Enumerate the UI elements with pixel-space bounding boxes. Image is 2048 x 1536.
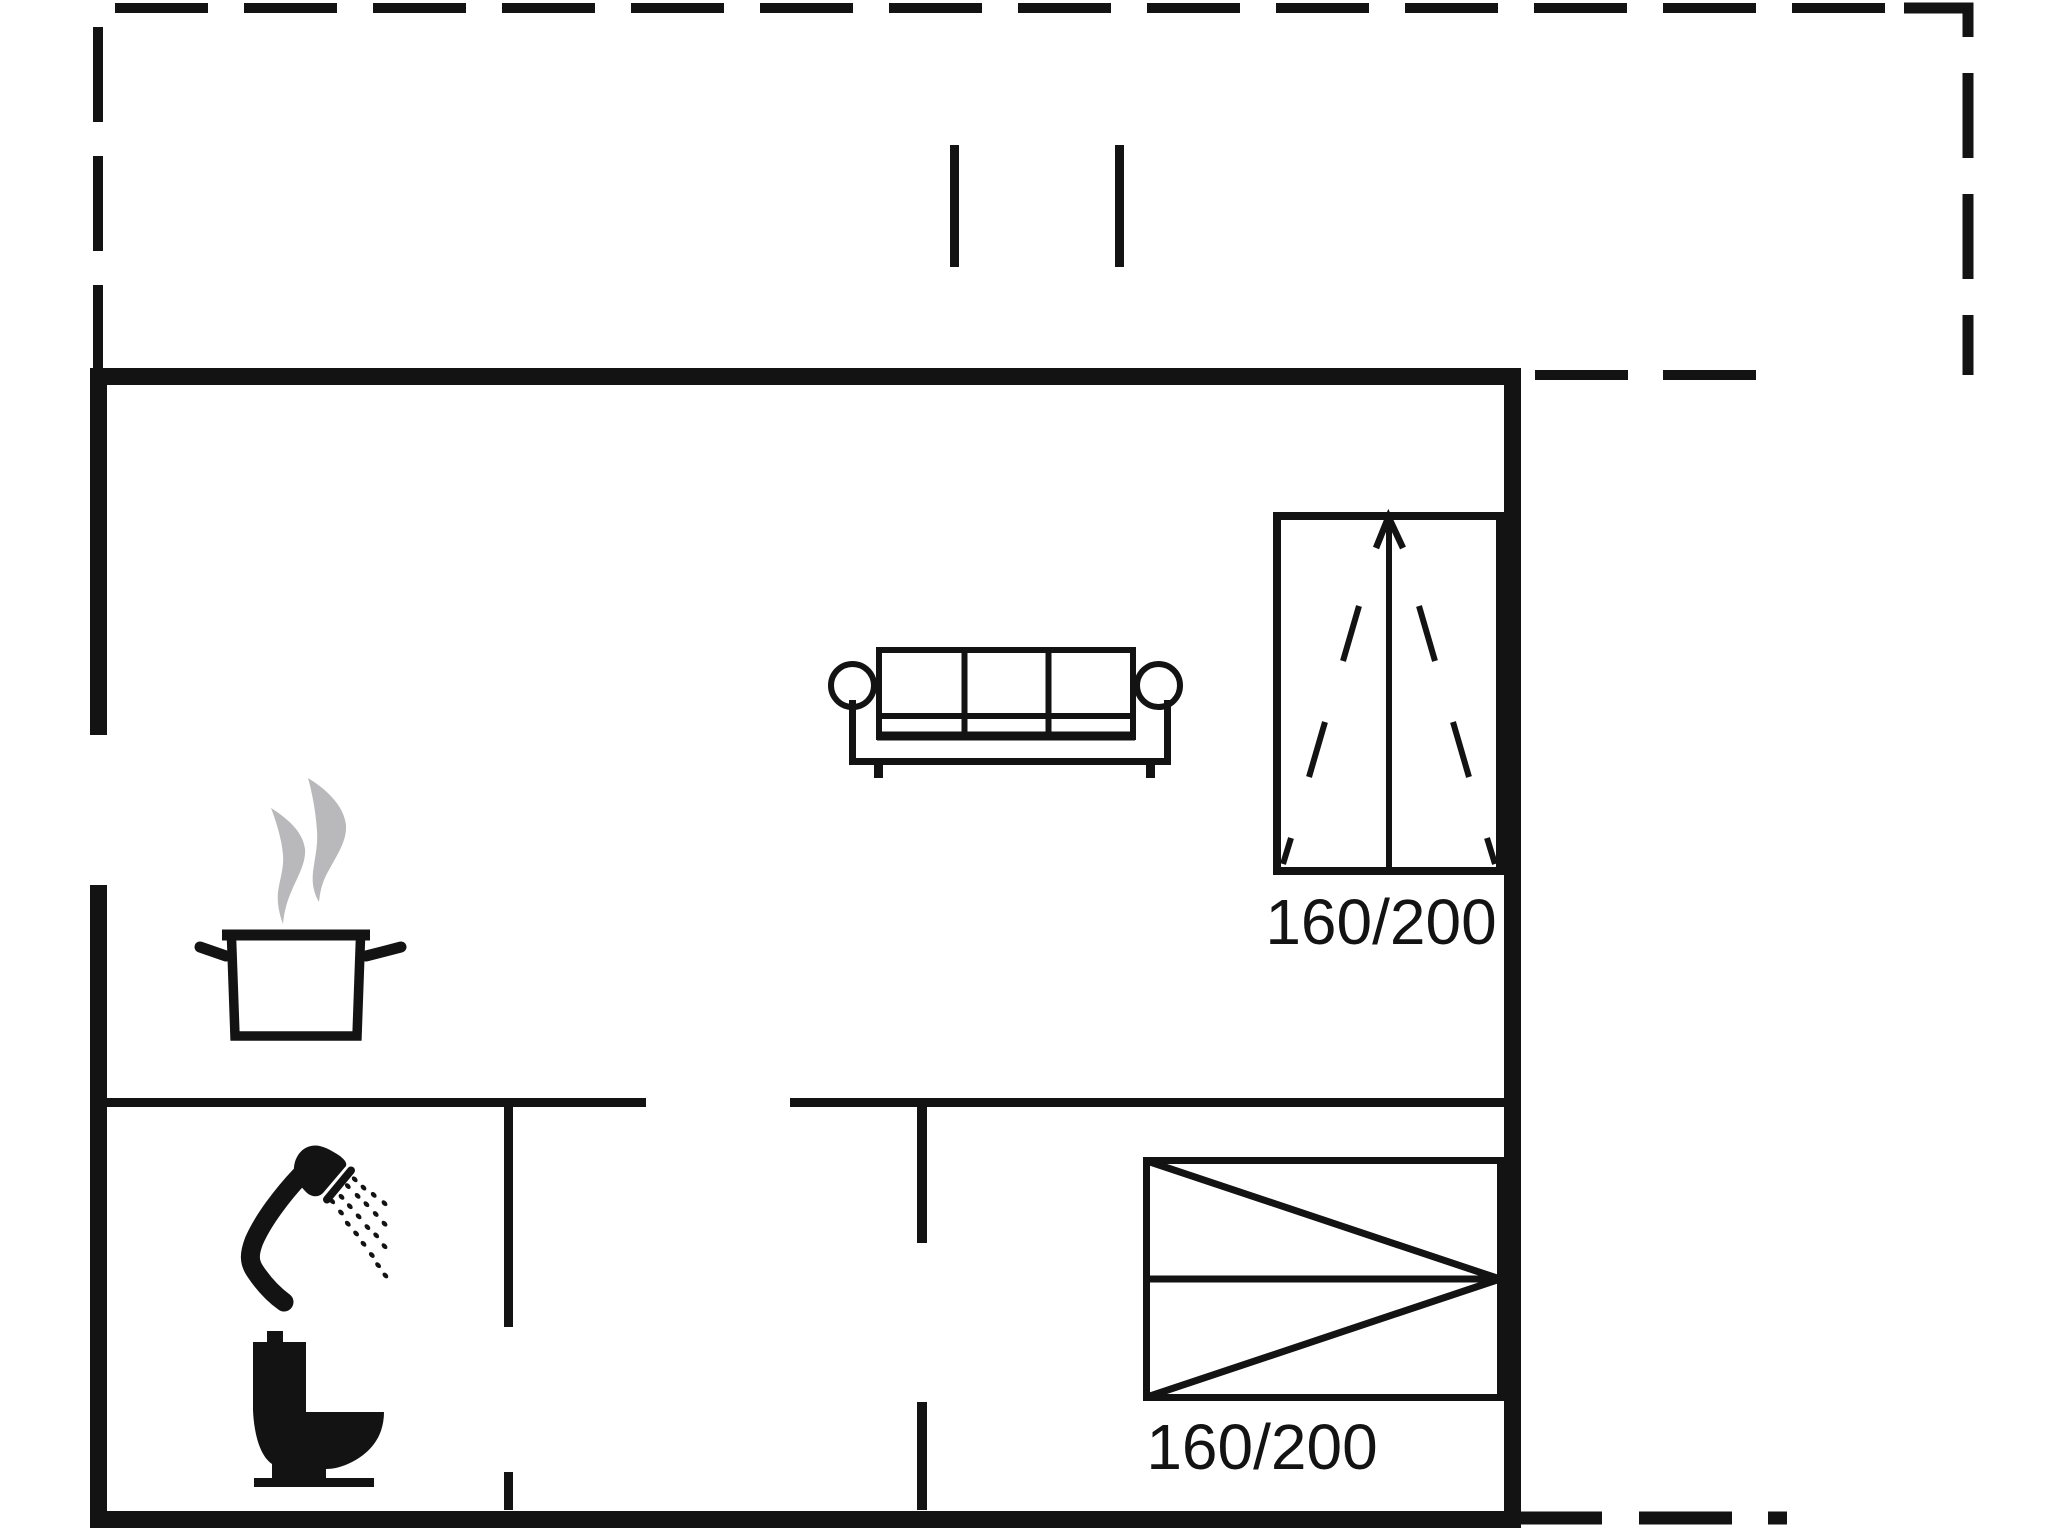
svg-text:160/200: 160/200: [1265, 886, 1496, 958]
svg-text:160/200: 160/200: [1146, 1411, 1377, 1483]
